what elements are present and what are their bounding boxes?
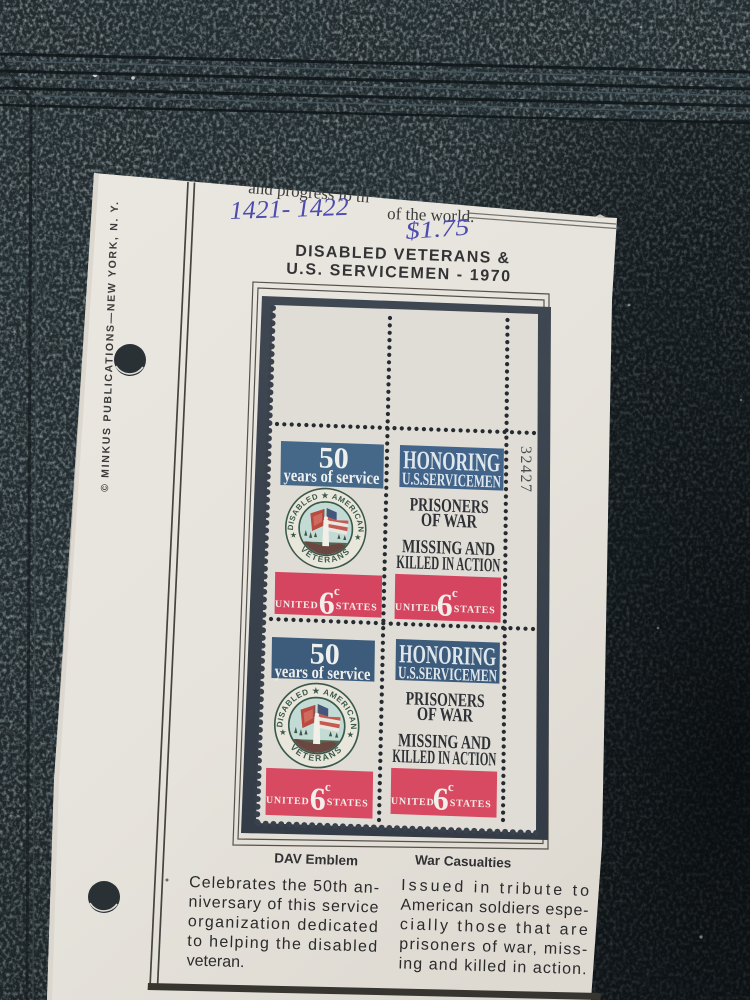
svg-text:6: 6: [437, 586, 453, 623]
svg-text:KILLED IN ACTION: KILLED IN ACTION: [396, 552, 500, 577]
svg-text:KILLED IN ACTION: KILLED IN ACTION: [392, 746, 496, 771]
svg-text:6: 6: [318, 584, 334, 621]
svg-text:DAV Emblem: DAV Emblem: [274, 851, 358, 869]
svg-text:UNITED: UNITED: [395, 602, 439, 615]
svg-text:years of service: years of service: [274, 661, 370, 684]
svg-text:STATES: STATES: [450, 798, 492, 810]
svg-text:c: c: [325, 779, 331, 794]
svg-text:c: c: [452, 585, 458, 600]
svg-text:UNITED: UNITED: [266, 795, 310, 808]
svg-text:1421- 1422: 1421- 1422: [229, 192, 349, 225]
svg-text:STATES: STATES: [454, 604, 496, 616]
svg-text:OF WAR: OF WAR: [417, 704, 473, 727]
svg-text:c: c: [448, 779, 454, 794]
svg-text:32427: 32427: [517, 446, 534, 494]
svg-text:UNITED: UNITED: [275, 599, 319, 612]
svg-text:years of service: years of service: [283, 465, 379, 488]
svg-text:$1.75: $1.75: [405, 215, 471, 245]
svg-text:U.S.SERVICEMEN: U.S.SERVICEMEN: [402, 468, 501, 491]
svg-text:OF WAR: OF WAR: [421, 510, 477, 533]
svg-text:UNITED: UNITED: [391, 796, 435, 809]
svg-text:c: c: [334, 583, 340, 598]
svg-text:6: 6: [433, 780, 449, 817]
svg-text:STATES: STATES: [336, 601, 378, 613]
svg-text:U.S.SERVICEMEN: U.S.SERVICEMEN: [398, 662, 497, 685]
svg-text:STATES: STATES: [327, 797, 369, 809]
svg-text:6: 6: [309, 780, 325, 817]
svg-text:veteran.: veteran.: [186, 952, 244, 971]
